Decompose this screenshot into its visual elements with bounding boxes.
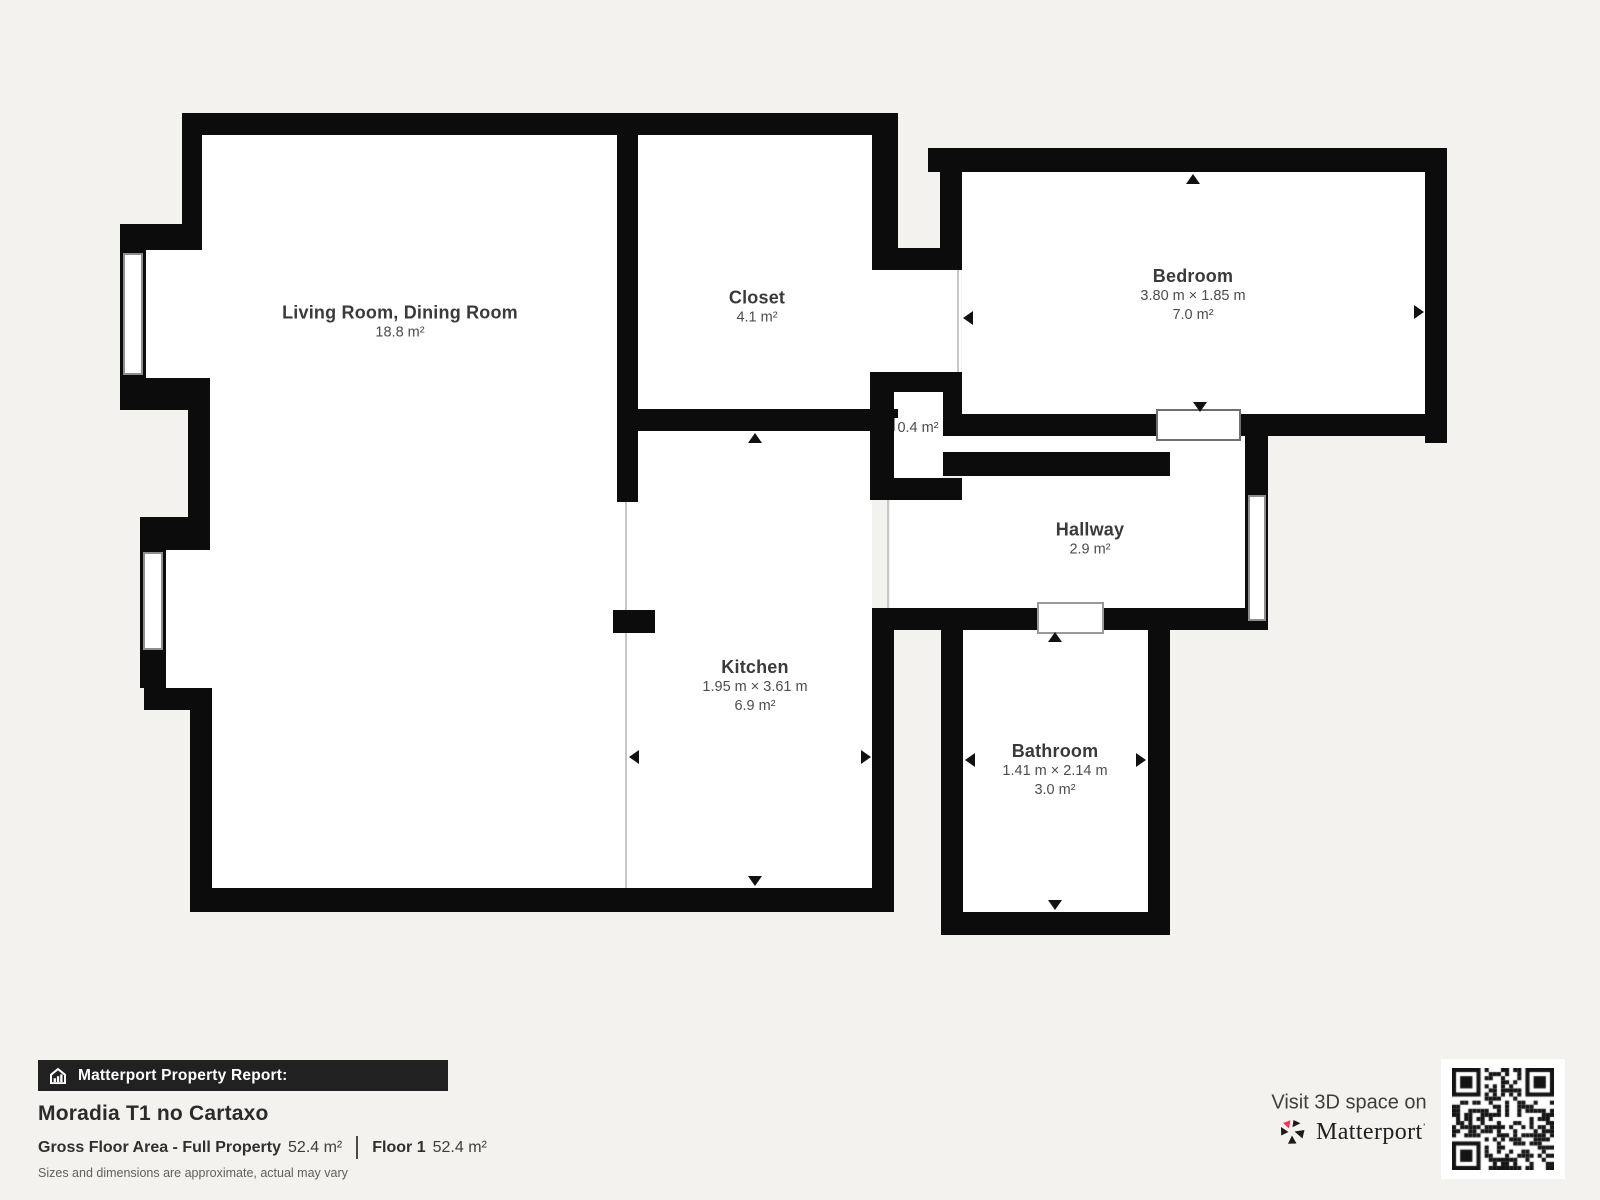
floor-area-line: Gross Floor Area - Full Property 52.4 m²… bbox=[38, 1136, 598, 1159]
qr-code bbox=[1452, 1068, 1554, 1170]
floor-plan bbox=[0, 0, 1600, 1200]
room-label-small-closet: 0.4 m² bbox=[894, 418, 941, 438]
room-floors bbox=[146, 135, 1425, 912]
bathroom-door bbox=[1038, 603, 1103, 633]
bedroom-door bbox=[1157, 410, 1240, 440]
closet-floor bbox=[638, 135, 961, 409]
window bbox=[1249, 496, 1265, 620]
gross-floor-area-label: Gross Floor Area - Full Property bbox=[38, 1139, 281, 1157]
matterport-wordmark: Matterport’ bbox=[1316, 1119, 1426, 1146]
gross-floor-area-value: 52.4 m² bbox=[288, 1139, 342, 1157]
house-chart-icon bbox=[48, 1066, 68, 1086]
window bbox=[124, 254, 142, 374]
qr-code-card bbox=[1441, 1059, 1565, 1179]
window bbox=[144, 553, 162, 649]
visit-3d-text: Visit 3D space on bbox=[1271, 1092, 1426, 1115]
property-report-block: Matterport Property Report: Moradia T1 n… bbox=[38, 1060, 598, 1180]
living-room-floor bbox=[146, 135, 617, 888]
report-banner: Matterport Property Report: bbox=[38, 1060, 448, 1091]
matterport-logo: Matterport’ bbox=[1278, 1117, 1426, 1147]
kitchen-floor bbox=[617, 431, 872, 888]
floor-label: Floor 1 bbox=[372, 1139, 425, 1157]
floor-area-value: 52.4 m² bbox=[433, 1139, 487, 1157]
bathroom-floor bbox=[963, 630, 1148, 912]
brand-text: Matterport bbox=[1316, 1119, 1423, 1145]
disclaimer-text: Sizes and dimensions are approximate, ac… bbox=[38, 1166, 598, 1180]
property-name: Moradia T1 no Cartaxo bbox=[38, 1102, 598, 1126]
banner-title: Matterport Property Report: bbox=[78, 1067, 288, 1085]
separator bbox=[356, 1136, 358, 1159]
floorplan-page: Living Room, Dining Room 18.8 m² Closet … bbox=[0, 0, 1600, 1200]
matterport-pinwheel-icon bbox=[1278, 1117, 1308, 1147]
bedroom-floor bbox=[962, 172, 1425, 414]
